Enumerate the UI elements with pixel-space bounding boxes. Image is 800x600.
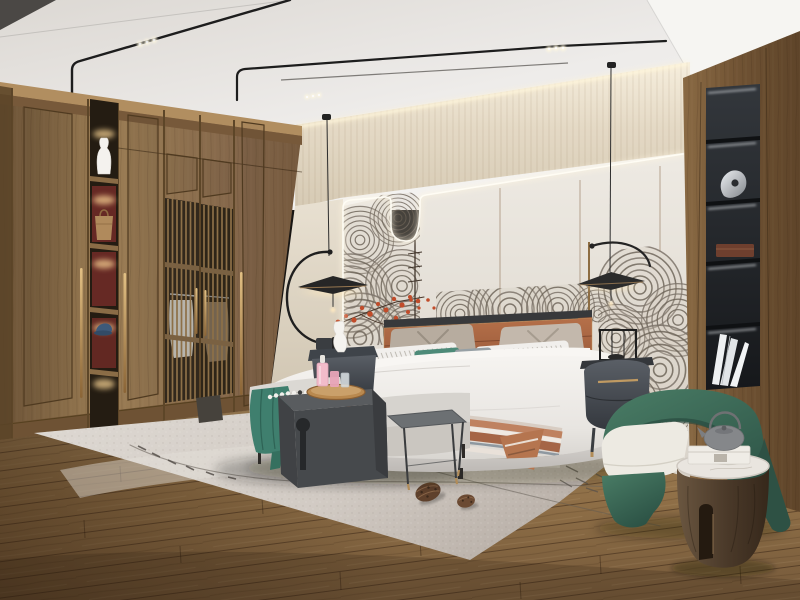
seat-cushion [602,422,689,479]
side-stile [0,86,12,440]
ceiling-mount [322,114,331,120]
dark-floor-box [196,395,223,423]
lamp-bulb [609,302,613,306]
wooden-box [716,244,754,257]
bedroom-scene [0,0,800,600]
charcoal-waterfall-table [278,389,388,488]
white-ceramic-vase [334,321,347,352]
pink-bottle-large [317,363,328,386]
bottle-stopper [320,355,325,363]
teapot-knob [722,426,727,431]
decor-box [316,338,332,350]
box-label [714,454,727,462]
lattice-doors [165,198,233,403]
pink-bottle-small [330,371,339,387]
drum-notch [699,504,713,560]
bedroom-photo [0,0,800,600]
display-shelf-column [90,99,118,429]
lamp-bulb [331,308,336,313]
glass-cup [341,373,349,387]
ceiling-mount [607,62,616,68]
display-niche [706,84,760,390]
sculpture-hole [731,179,738,186]
